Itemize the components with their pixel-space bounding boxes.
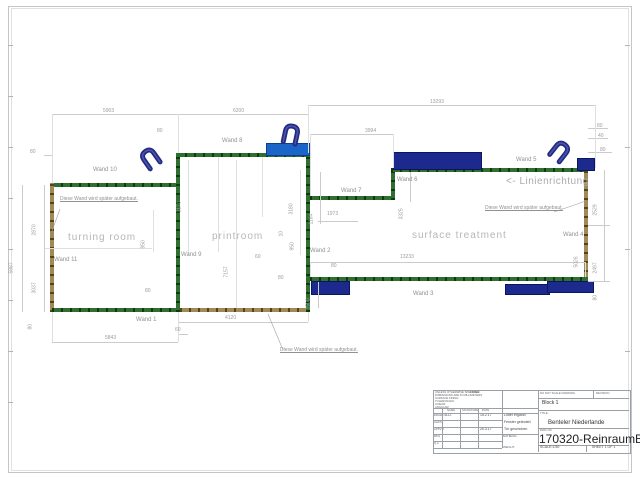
dim-line [22,185,23,312]
zone-tick [8,45,13,46]
dim-line [52,342,178,343]
ext-line [308,312,309,322]
clamp-icon [277,120,305,148]
dim-line [320,172,321,224]
dimension-label: 1500 [307,298,313,309]
titleblock-header: NAME [447,409,455,412]
zone-tick [8,351,13,352]
dimension-label: 80 [30,150,36,156]
dimension-label: 6200 [233,109,244,115]
room-label: turning room [68,232,136,243]
wall-label: Wand 2 [310,248,330,255]
fan-unit [577,158,595,171]
room-label: surface treatment [412,230,507,241]
wall-printroom-bottom-later [180,308,308,312]
ext-line [52,312,53,342]
dimension-label: 80 [157,129,163,135]
annotation: <- Linienrichtung [506,176,589,187]
zone-tick [625,45,630,46]
dim-line [308,105,595,106]
dimension-label: 3037 [33,282,39,293]
wall-wand1 [52,308,178,312]
dimension-label: 80 [594,295,600,301]
dimension-label: 80 [145,289,151,295]
dimension-label: 7157 [225,266,231,277]
wall-label: Wand 5 [516,157,536,164]
dim-line [262,157,263,217]
dim-line [44,185,45,312]
zone-tick [8,402,13,403]
zone-tick [8,96,13,97]
wall-wand9 [176,153,180,312]
dimension-label: 3170 [178,201,184,212]
wall-wand7 [310,196,393,200]
zone-tick [625,249,630,250]
zone-tick [8,198,13,199]
titleblock-date: 20.3.17 [480,428,492,432]
do-not-scale-label: DO NOT SCALE DRAWING [540,392,575,395]
dimension-label: 2529 [594,204,600,215]
fan-unit [505,284,550,295]
dimension-label: 13233 [400,255,414,261]
zone-tick [625,147,630,148]
ext-line [308,105,309,153]
zone-tick [8,147,13,148]
title-label: TITLE: [540,412,548,415]
dim-line [52,114,178,115]
dim-line [318,282,319,308]
dim-line [188,160,189,255]
dimension-label: 5843 [105,336,116,342]
wall-label: Wand 9 [181,252,201,259]
dimension-label: 1973 [327,212,338,218]
titleblock-role: MFG [434,435,440,438]
fan-unit [311,281,350,295]
dimension-label: 80 [278,276,284,282]
titleblock-note: Lüfter ergänzt [504,414,526,418]
dimension-label: 950 [291,242,297,250]
dim-line [178,334,188,335]
ext-line [595,105,596,168]
dimension-label: 80 [600,148,606,154]
annotation: Diese Wand wird später aufgebaut. [485,206,563,212]
fan-unit [547,281,594,293]
dim-line [44,248,152,249]
titleblock-header: DATE [482,409,489,412]
dim-line [300,170,301,255]
room-label: printroom [212,231,263,242]
sheet-label: SHEET 1 OF 1 [592,446,615,450]
ext-line [393,134,394,168]
wall-wand6 [391,168,395,200]
dimension-label: 2497 [594,262,600,273]
wall-label: Wand 3 [413,291,433,298]
clamp-icon [133,141,166,174]
wall-wand10 [52,183,178,187]
zone-tick [625,351,630,352]
weight-label: WEIGHT: [503,446,515,449]
dim-line [178,322,308,323]
dim-line [44,155,52,156]
clamp-icon [543,134,577,168]
ext-line [585,262,586,277]
dimension-label: 10 [280,231,286,237]
revision-label: REVISION [596,392,609,395]
dim-line [318,221,358,222]
dimension-label: 13293 [430,100,444,106]
dimension-label: 3994 [365,129,376,135]
wall-label: Wand 1 [136,317,156,324]
dimension-label: 5026 [575,256,581,267]
ext-line [310,262,311,277]
wall-label: Wand 7 [341,188,361,195]
titleblock-role: Q.A [434,442,439,445]
dimension-label: 3325 [400,208,406,219]
annotation: Diese Wand wird später aufgebaut. [280,348,358,354]
dim-line [588,281,610,282]
dimension-label: 60 [175,328,181,334]
dim-line [588,225,610,226]
dimension-label: 80 [29,324,35,330]
titleblock-note: Tür geschoben [504,428,527,432]
dimension-label: 1164 [310,214,316,225]
dimension-label: 3180 [290,203,296,214]
dimension-label: 5903 [103,109,114,115]
fan-unit [393,152,482,170]
wall-label: Wand 8 [222,138,242,145]
dimension-label: 950 [142,240,148,248]
project-title: Benteler Niederlande [548,420,604,427]
dimension-label: 60 [255,255,261,261]
wall-label: Wand 4 [563,232,583,239]
zone-tick [8,249,13,250]
scale-label: SCALE:1:50 [540,446,559,450]
dimension-label: 40 [598,134,604,140]
ext-line [178,114,179,153]
titleblock-name: A.D. [445,414,452,418]
dimension-label: 5987 [10,262,16,273]
wall-label: Wand 10 [93,167,117,174]
ext-line [52,114,53,183]
revision-value: Block 1 [542,401,558,407]
titleblock-date: 15.2.17 [480,414,492,418]
finish-label: FINISH: [470,391,480,394]
wall-label: Wand 6 [397,177,417,184]
ext-line [310,134,311,196]
dim-line [153,210,154,252]
material-label: MATERIAL: [503,435,518,438]
titleblock-header: SIGNATURE [462,409,478,412]
wall-label: Wand 11 [54,257,77,264]
dimension-label: 2870 [33,224,39,235]
dimension-label: 4120 [225,316,236,322]
dimension-label: 80 [597,124,603,130]
dim-line [310,262,585,263]
annotation: Diese Wand wird später aufgebaut. [60,197,138,203]
drawing-sheet: turning roomprintroomsurface treatmentWa… [0,0,640,480]
zone-tick [8,300,13,301]
dimension-label: 80 [331,264,337,270]
dim-line [604,170,605,281]
dim-line [310,134,393,135]
titleblock-note: Fenster geändert [504,421,531,425]
